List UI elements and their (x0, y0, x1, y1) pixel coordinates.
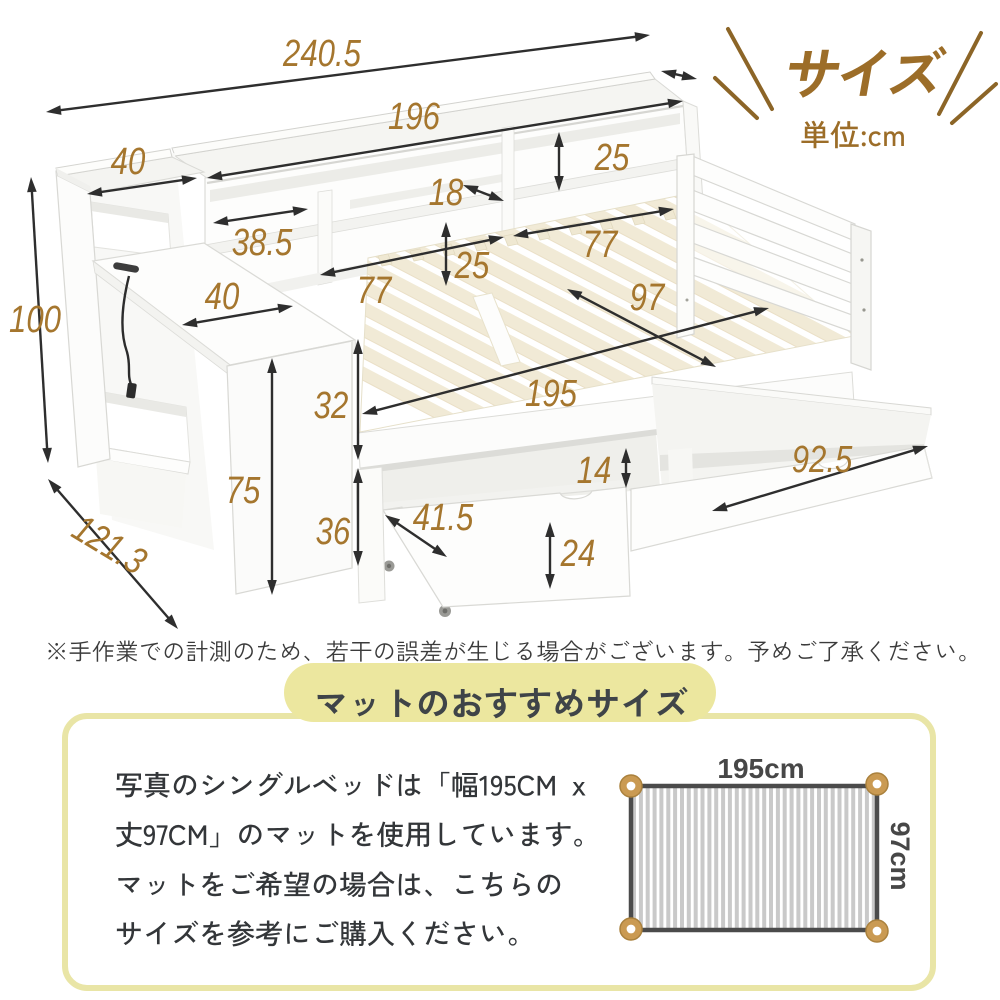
svg-text:18: 18 (429, 172, 464, 214)
svg-text:240.5: 240.5 (282, 33, 361, 75)
svg-text:25: 25 (594, 137, 630, 179)
svg-text:32: 32 (314, 385, 349, 427)
svg-text:38.5: 38.5 (232, 222, 293, 264)
svg-text:24: 24 (560, 533, 596, 575)
svg-text:97: 97 (630, 277, 666, 319)
svg-text:14: 14 (577, 450, 612, 492)
svg-text:77: 77 (583, 224, 619, 266)
svg-text:36: 36 (316, 511, 351, 553)
svg-text:195cm: 195cm (717, 753, 804, 784)
svg-text:97cm: 97cm (885, 821, 915, 890)
svg-text:25: 25 (454, 245, 490, 287)
svg-text:75: 75 (226, 470, 261, 512)
svg-text:196: 196 (388, 96, 441, 138)
svg-text:92.5: 92.5 (792, 439, 853, 481)
svg-text:100: 100 (9, 299, 62, 341)
svg-text:41.5: 41.5 (413, 497, 474, 539)
svg-text:40: 40 (205, 276, 240, 318)
svg-text:77: 77 (357, 270, 393, 312)
svg-text:195: 195 (525, 373, 578, 415)
svg-text:40: 40 (111, 141, 146, 183)
